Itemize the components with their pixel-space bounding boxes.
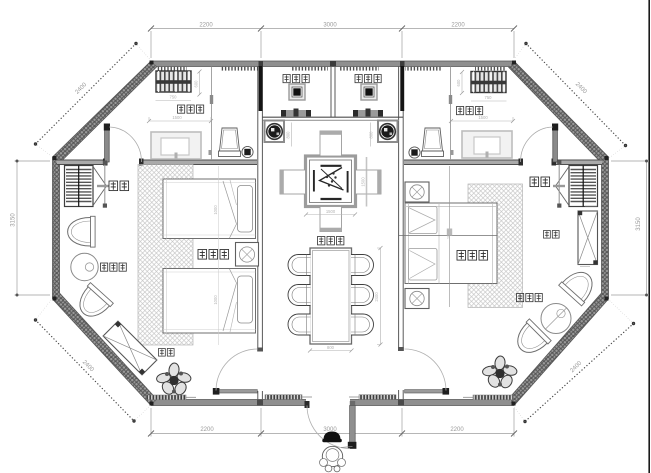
svg-text:600: 600 [456,79,461,87]
svg-text:2200: 2200 [200,427,214,433]
svg-text:3150: 3150 [11,213,17,227]
svg-text:2200: 2200 [451,23,465,29]
svg-text:3000: 3000 [323,23,337,29]
svg-text:1500: 1500 [478,115,488,120]
svg-text:2400: 2400 [374,292,379,302]
svg-text:1500: 1500 [172,115,182,120]
svg-text:3150: 3150 [636,217,642,231]
svg-text:1800: 1800 [446,229,451,239]
svg-text:800: 800 [286,131,291,139]
svg-text:750: 750 [485,95,493,100]
svg-text:800: 800 [369,131,374,139]
svg-text:2200: 2200 [199,23,213,29]
svg-text:1500: 1500 [326,209,336,214]
svg-text:1000: 1000 [213,205,218,215]
svg-text:1500: 1500 [361,177,366,187]
svg-text:800: 800 [327,345,335,350]
svg-text:600: 600 [194,80,199,88]
svg-text:750: 750 [170,95,178,100]
svg-text:1000: 1000 [213,295,218,305]
svg-text:2200: 2200 [450,427,464,433]
